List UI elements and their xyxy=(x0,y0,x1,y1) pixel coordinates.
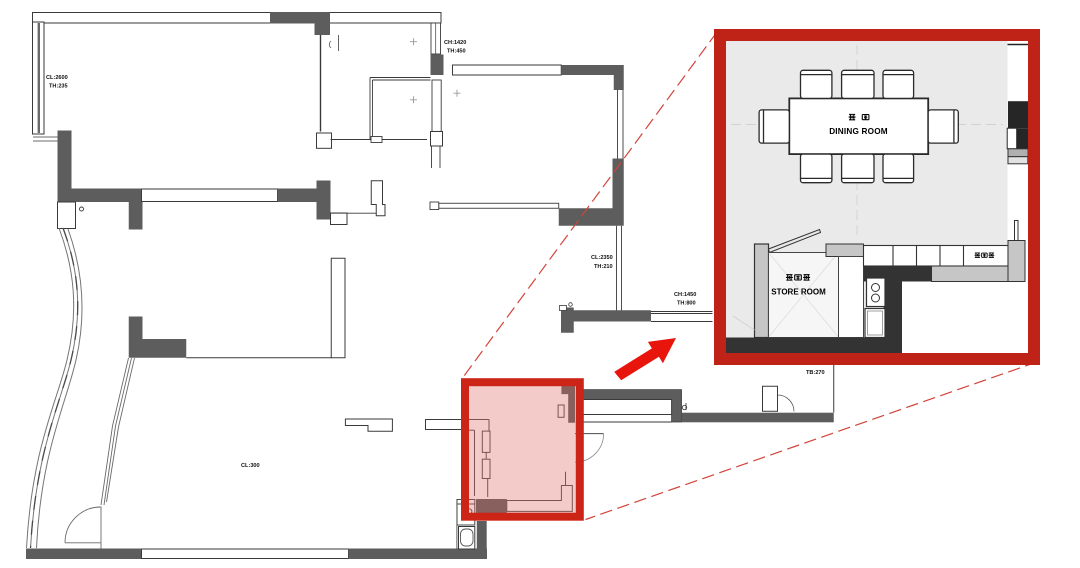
svg-text:DINING ROOM: DINING ROOM xyxy=(829,127,888,136)
svg-text:CH:1450: CH:1450 xyxy=(674,292,696,298)
svg-text:CL:300: CL:300 xyxy=(241,463,260,469)
svg-text:TH:235: TH:235 xyxy=(49,84,68,90)
svg-text:STORE ROOM: STORE ROOM xyxy=(771,288,826,297)
svg-text:CL:2600: CL:2600 xyxy=(46,75,68,81)
svg-text:TB:270: TB:270 xyxy=(806,370,825,376)
svg-text:TH:800: TH:800 xyxy=(677,301,696,307)
svg-text:TH:210: TH:210 xyxy=(594,264,613,270)
svg-text:CL:2350: CL:2350 xyxy=(591,255,613,261)
svg-text:TH:450: TH:450 xyxy=(447,49,466,55)
svg-text:CH:1420: CH:1420 xyxy=(444,40,466,46)
